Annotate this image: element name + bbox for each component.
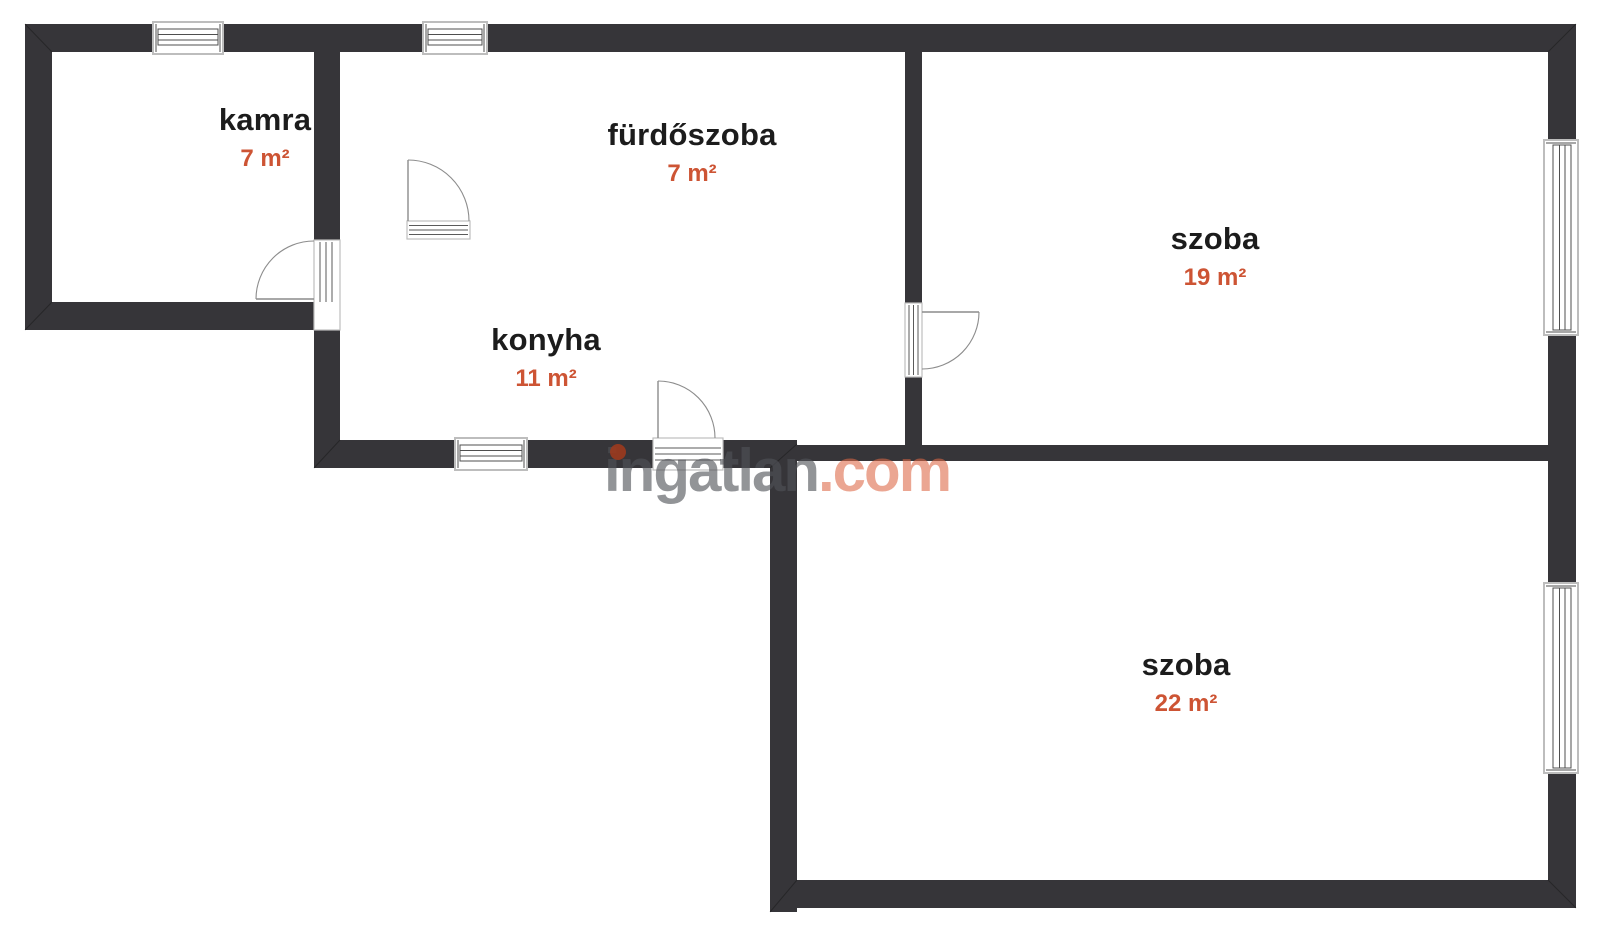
floor-plan: kamra 7 m² fürdőszoba 7 m² konyha 11 m² … <box>0 0 1600 940</box>
wall-szoba-szoba-divider <box>797 445 1548 461</box>
wall-top <box>25 24 1576 52</box>
doors <box>256 160 979 470</box>
door-szoba-19 <box>905 303 979 377</box>
wall-kamra-bottom <box>25 302 340 330</box>
wall-szoba22-bottom <box>770 880 1576 908</box>
window-szoba-22 <box>1544 583 1578 773</box>
window-szoba-19 <box>1544 140 1578 335</box>
windows <box>153 22 1578 773</box>
wall-left <box>25 24 52 330</box>
wall-furdoszoba-szoba-divider <box>905 52 922 461</box>
door-furdoszoba <box>407 160 470 239</box>
door-konyha-entrance <box>653 381 723 470</box>
wall-konyha-bottom <box>314 440 797 468</box>
window-kamra <box>153 22 223 54</box>
wall-szoba22-left <box>770 443 797 912</box>
floor-plan-drawing <box>0 0 1600 940</box>
walls <box>25 24 1576 912</box>
wall-miter-seams <box>25 24 1576 912</box>
window-furdoszoba <box>423 22 487 54</box>
window-konyha <box>455 438 527 470</box>
wall-kamra-furdoszoba-divider <box>314 52 340 240</box>
